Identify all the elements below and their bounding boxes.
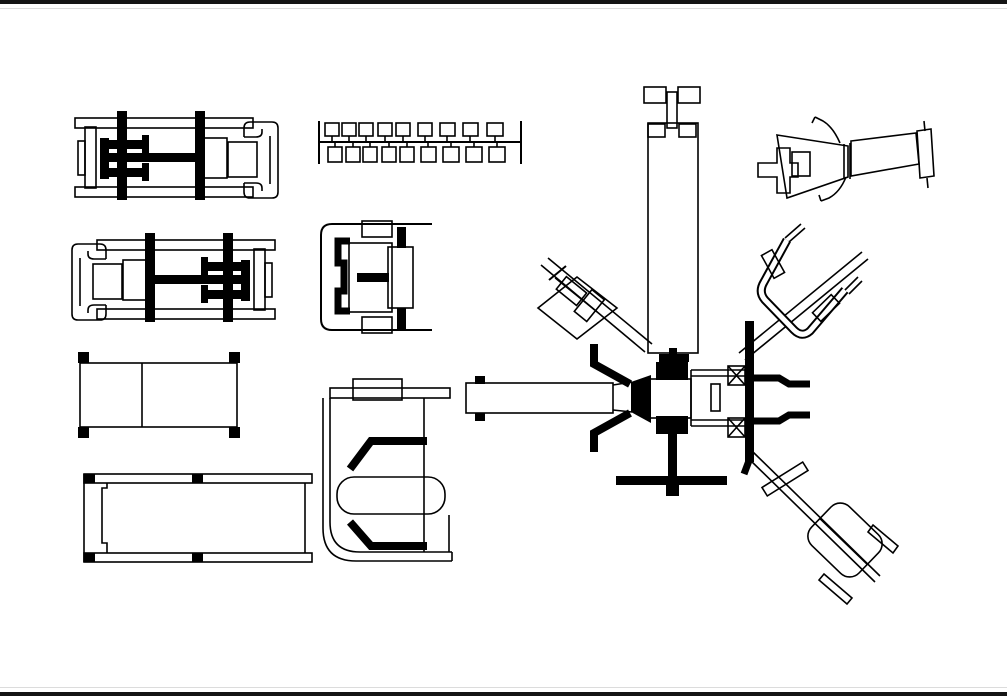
cad-canvas <box>0 0 1007 696</box>
cad-drawing <box>0 0 1007 696</box>
gym-vertical-bench <box>644 87 700 362</box>
block-dumbbell-rack <box>319 121 521 164</box>
gym-upper-right-handle <box>739 224 868 360</box>
page-bottom-edge <box>0 692 1007 696</box>
gym-central-hub <box>616 321 810 496</box>
block-seated-machine <box>321 221 432 333</box>
gym-lower-right-seat <box>748 452 898 604</box>
block-press-machine-right <box>75 111 278 200</box>
block-inclined-bench-machine <box>758 117 934 201</box>
block-press-machine-left <box>72 233 275 322</box>
block-chest-press-machine <box>323 379 452 561</box>
block-flat-bench <box>78 352 240 438</box>
block-multi-station-gym <box>466 87 898 604</box>
gym-upper-left-carriage <box>538 258 652 352</box>
block-long-bench <box>84 474 312 562</box>
page-bottom-edge-line <box>0 687 1007 688</box>
gym-left-bench <box>466 344 632 452</box>
